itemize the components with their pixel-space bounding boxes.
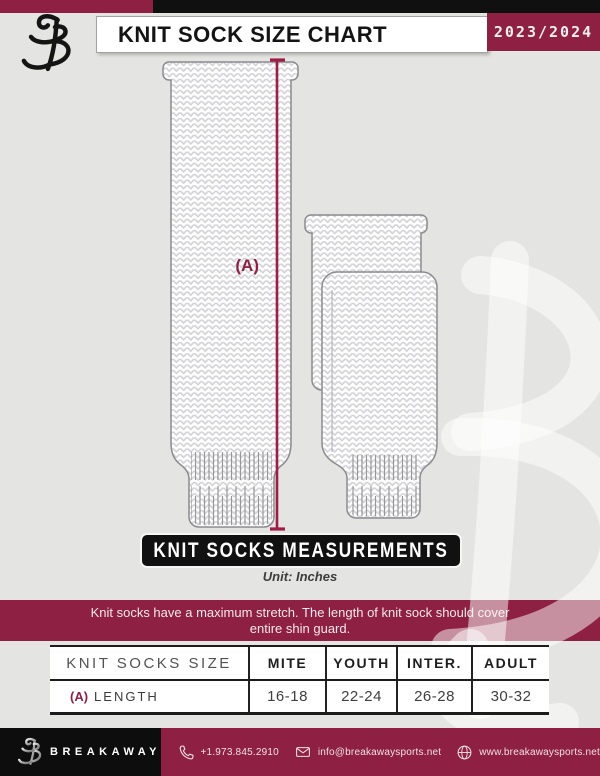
contact-email[interactable]: info@breakawaysports.net — [294, 744, 441, 760]
phone-text: +1.973.845.2910 — [201, 747, 279, 758]
breakaway-b-logo — [14, 12, 80, 76]
sock-medium — [305, 215, 427, 390]
table-header-adult: ADULT — [471, 647, 549, 679]
length-inter: 26-28 — [396, 681, 471, 712]
breakaway-b-logo-small — [16, 737, 44, 767]
footer-brand-block: BREAKAWAY — [0, 728, 161, 776]
envelope-icon — [294, 744, 312, 760]
website-text: www.breakawaysports.net — [479, 747, 600, 758]
title-bar: KNIT SOCK SIZE CHART — [96, 16, 488, 53]
row-label-length: (A) LENGTH — [50, 681, 248, 712]
email-text: info@breakawaysports.net — [318, 747, 441, 758]
measurements-banner: KNIT SOCKS MEASUREMENTS — [142, 535, 460, 566]
sock-large — [163, 62, 298, 527]
footer: BREAKAWAY +1.973.845.2910 info@breakaway… — [0, 728, 600, 776]
table-header-mite: MITE — [248, 647, 325, 679]
row-label-text: LENGTH — [94, 689, 159, 704]
length-adult: 30-32 — [471, 681, 549, 712]
table-header-youth: YOUTH — [325, 647, 396, 679]
season-label: 2023/2024 — [494, 23, 593, 41]
table-header-size: KNIT SOCKS SIZE — [50, 647, 248, 679]
length-measurement-line: (A) — [235, 60, 285, 529]
footer-contact-block: +1.973.845.2910 info@breakawaysports.net… — [161, 728, 600, 776]
contact-phone[interactable]: +1.973.845.2910 — [178, 744, 279, 761]
page-title: KNIT SOCK SIZE CHART — [118, 22, 387, 48]
length-mite: 16-18 — [248, 681, 325, 712]
knit-socks-illustration: (A) — [0, 0, 600, 545]
top-strip-black — [153, 0, 600, 13]
table-row-length: (A) LENGTH 16-18 22-24 26-28 30-32 — [50, 681, 549, 715]
length-youth: 22-24 — [325, 681, 396, 712]
note-line-1: Knit socks have a maximum stretch. The l… — [91, 605, 510, 620]
contact-website[interactable]: www.breakawaysports.net — [456, 744, 600, 761]
row-label-prefix: (A) — [70, 689, 88, 704]
season-box: 2023/2024 — [487, 13, 600, 51]
size-table: KNIT SOCKS SIZE MITE YOUTH INTER. ADULT … — [50, 645, 549, 715]
phone-icon — [178, 744, 195, 761]
stretch-note-banner: Knit socks have a maximum stretch. The l… — [0, 600, 600, 641]
measurements-banner-label: KNIT SOCKS MEASUREMENTS — [153, 539, 448, 563]
table-header-row: KNIT SOCKS SIZE MITE YOUTH INTER. ADULT — [50, 645, 549, 681]
table-header-inter: INTER. — [396, 647, 471, 679]
knit-sock-size-chart-page: KNIT SOCK SIZE CHART 2023/2024 — [0, 0, 600, 776]
brand-name: BREAKAWAY — [50, 728, 161, 776]
note-line-2: entire shin guard. — [250, 621, 350, 636]
measure-label: (A) — [235, 256, 259, 275]
globe-icon — [456, 744, 473, 761]
unit-note: Unit: Inches — [0, 569, 600, 584]
sock-small — [322, 272, 437, 518]
